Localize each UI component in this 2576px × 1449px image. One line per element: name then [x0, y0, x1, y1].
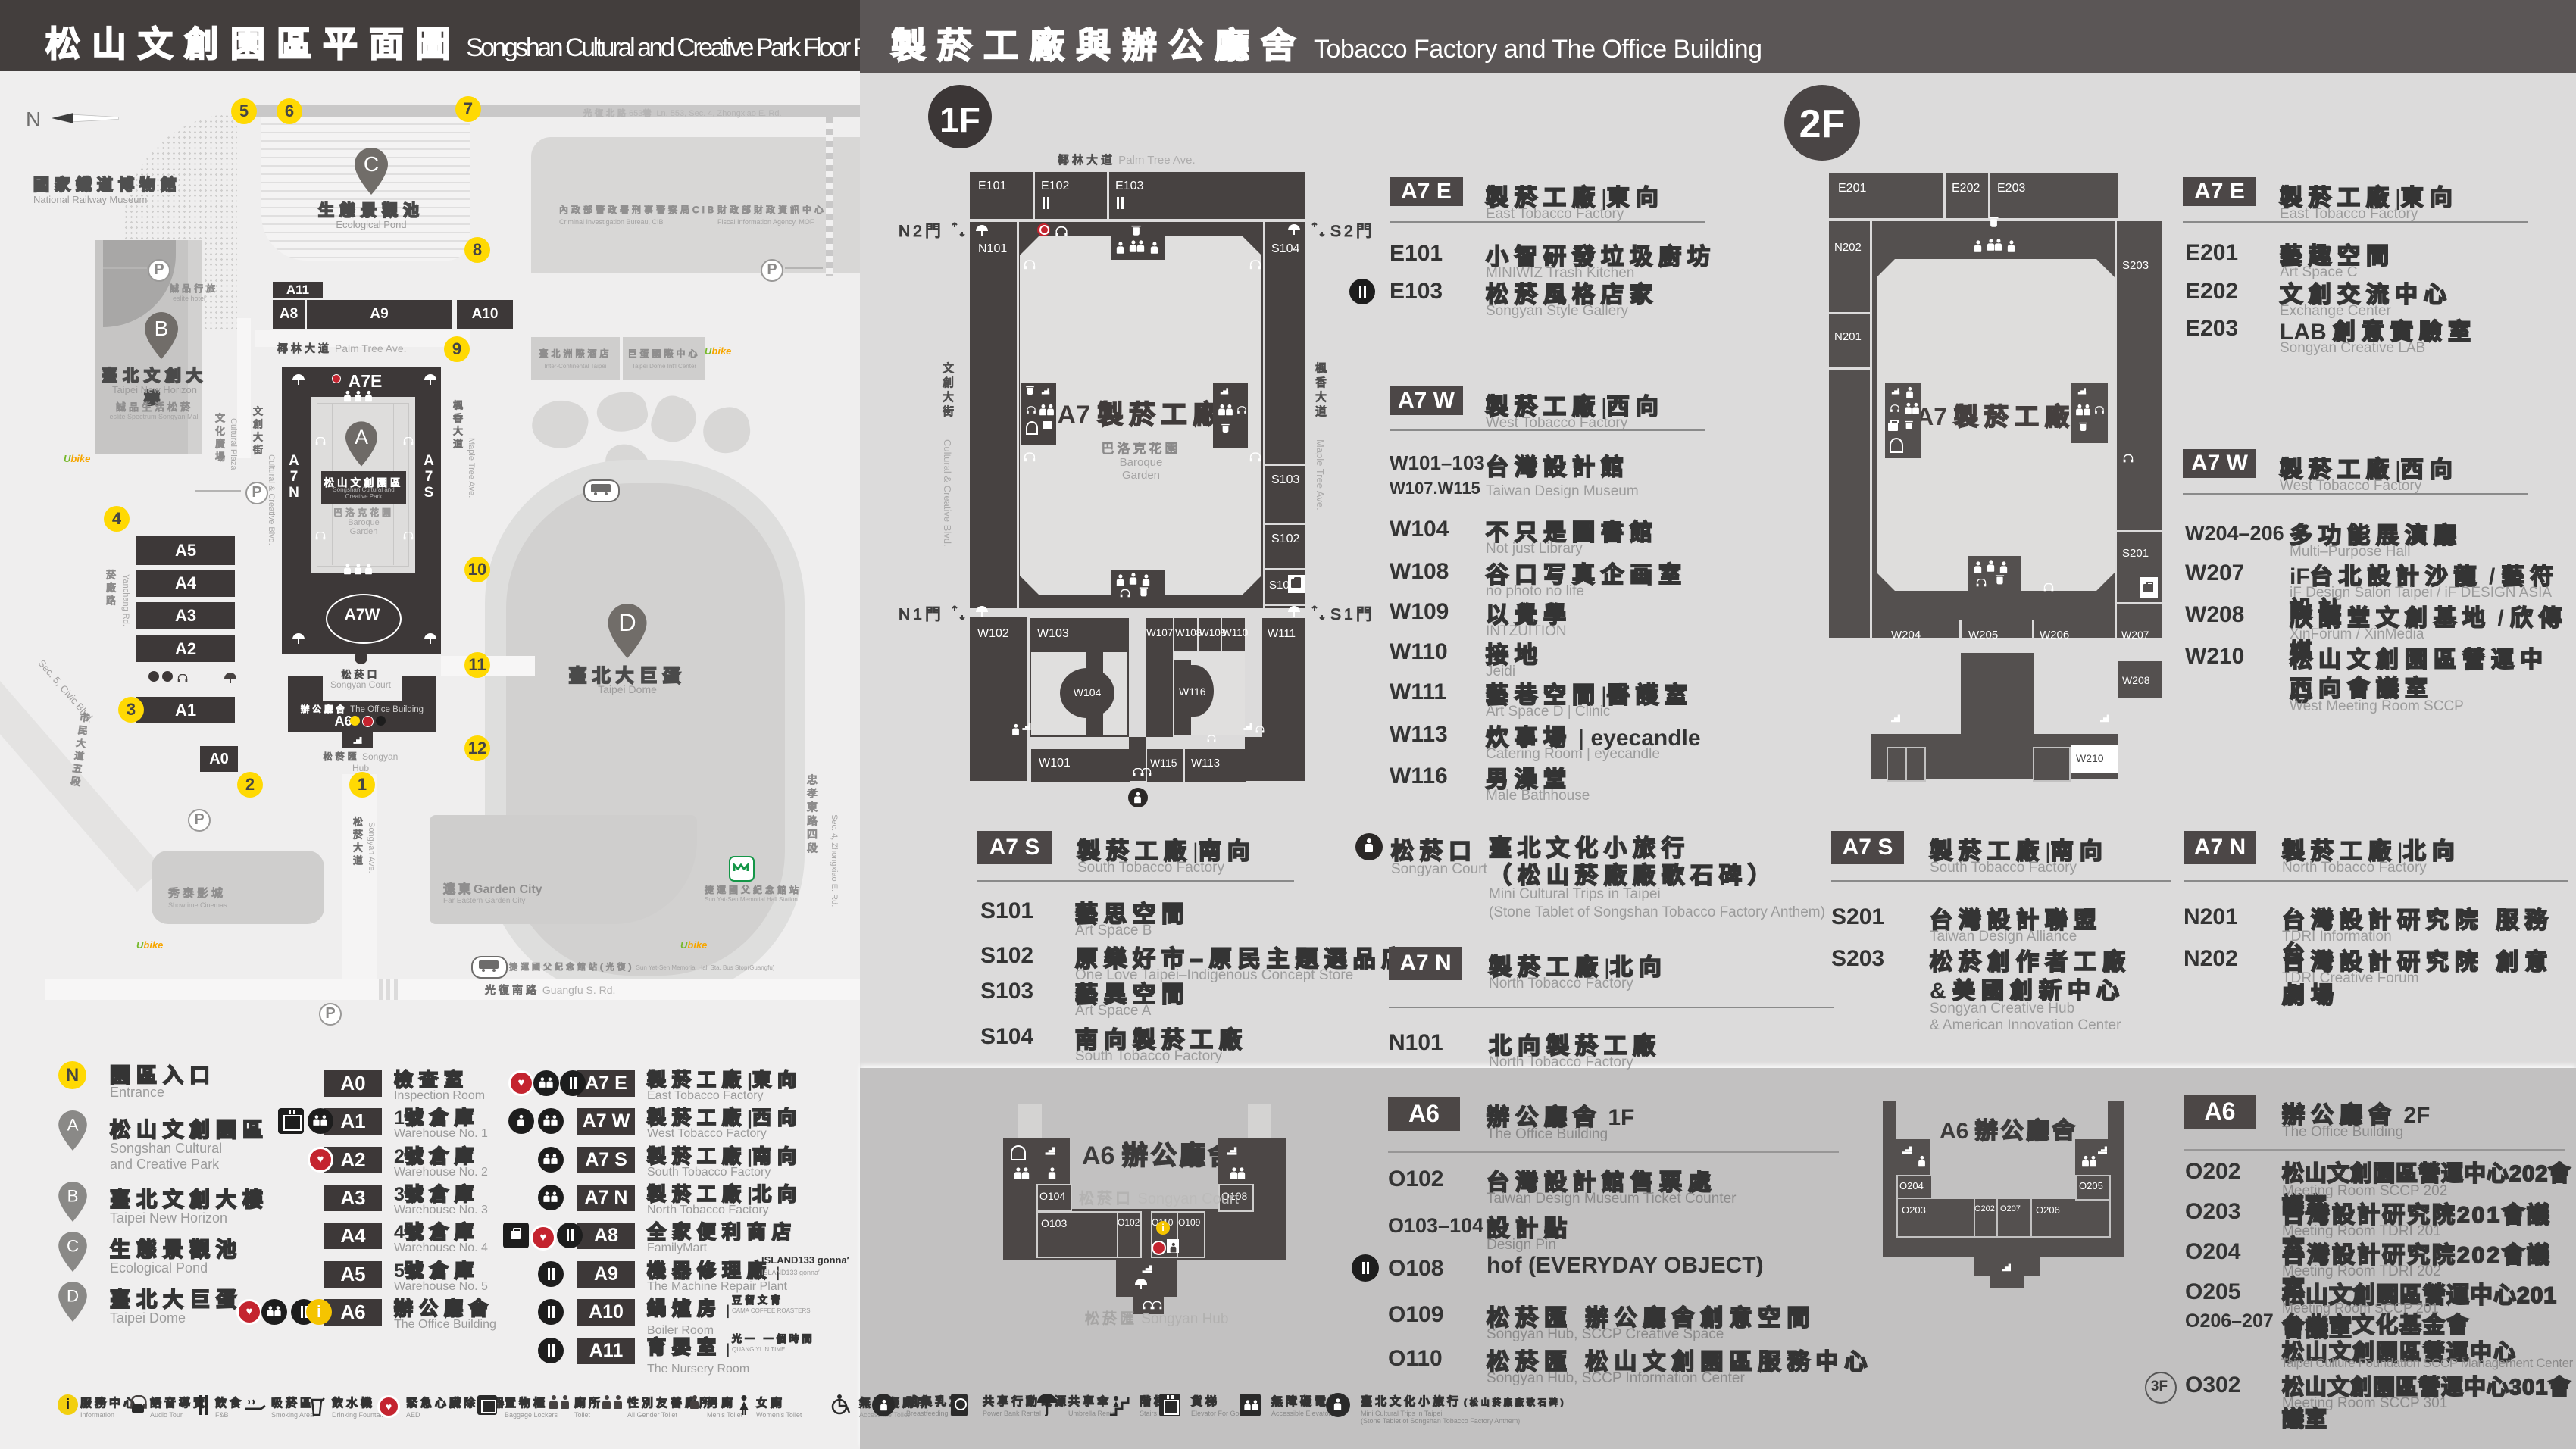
svg-text:C: C — [364, 152, 379, 176]
svg-text:A: A — [67, 1116, 79, 1135]
svg-text:B: B — [67, 1187, 79, 1206]
svg-text:A: A — [355, 426, 368, 448]
svg-text:C: C — [67, 1237, 79, 1256]
svg-text:D: D — [618, 609, 636, 636]
svg-text:D: D — [67, 1287, 79, 1306]
svg-text:B: B — [155, 317, 169, 340]
